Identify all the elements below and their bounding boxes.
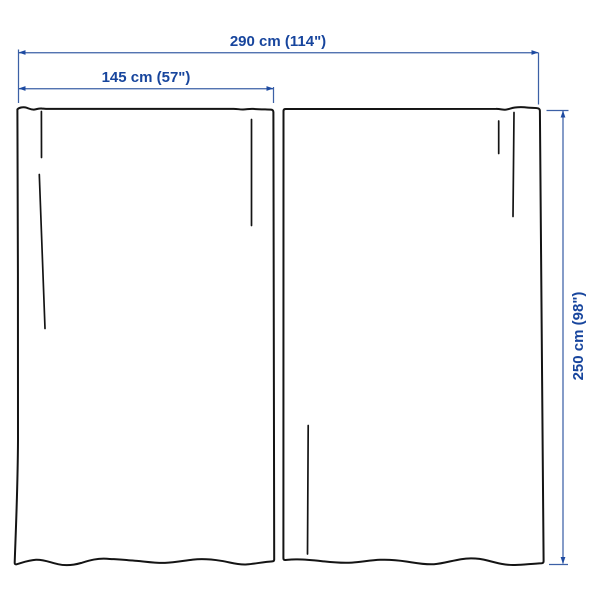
svg-text:290 cm (114"): 290 cm (114")	[230, 33, 326, 50]
svg-text:250 cm (98"): 250 cm (98")	[570, 292, 587, 381]
svg-text:145 cm (57"): 145 cm (57")	[102, 69, 191, 86]
